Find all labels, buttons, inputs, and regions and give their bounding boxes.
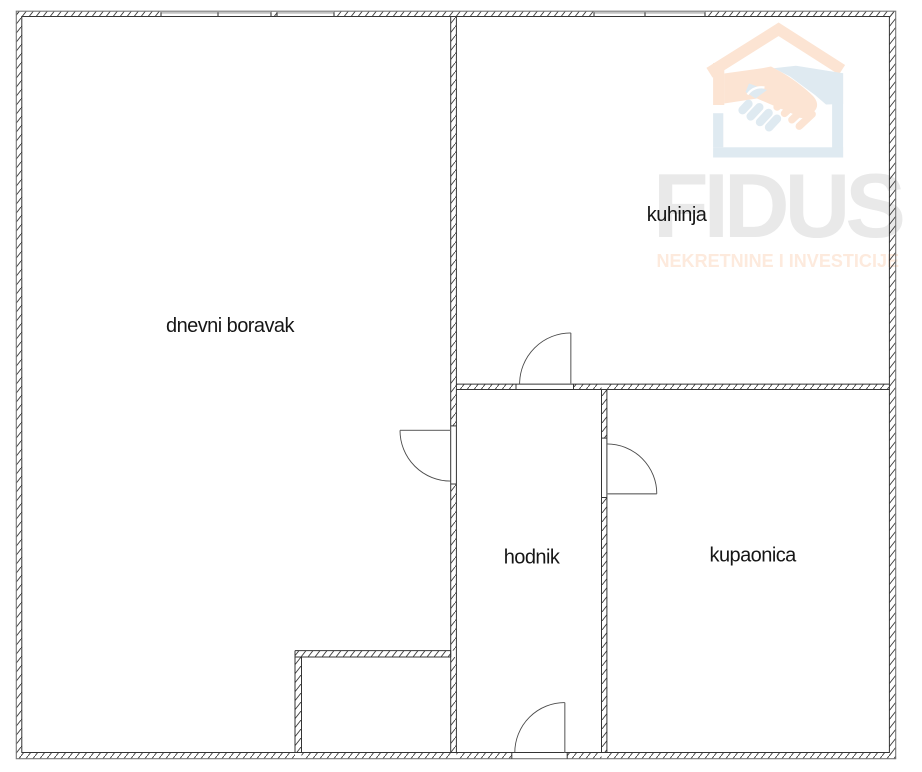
svg-text:hodnik: hodnik — [504, 547, 561, 569]
svg-text:NEKRETNINE I INVESTICIJE: NEKRETNINE I INVESTICIJE — [657, 251, 900, 271]
svg-text:kuhinja: kuhinja — [647, 204, 708, 226]
svg-text:dnevni boravak: dnevni boravak — [166, 315, 295, 337]
svg-text:kupaonica: kupaonica — [710, 545, 798, 567]
